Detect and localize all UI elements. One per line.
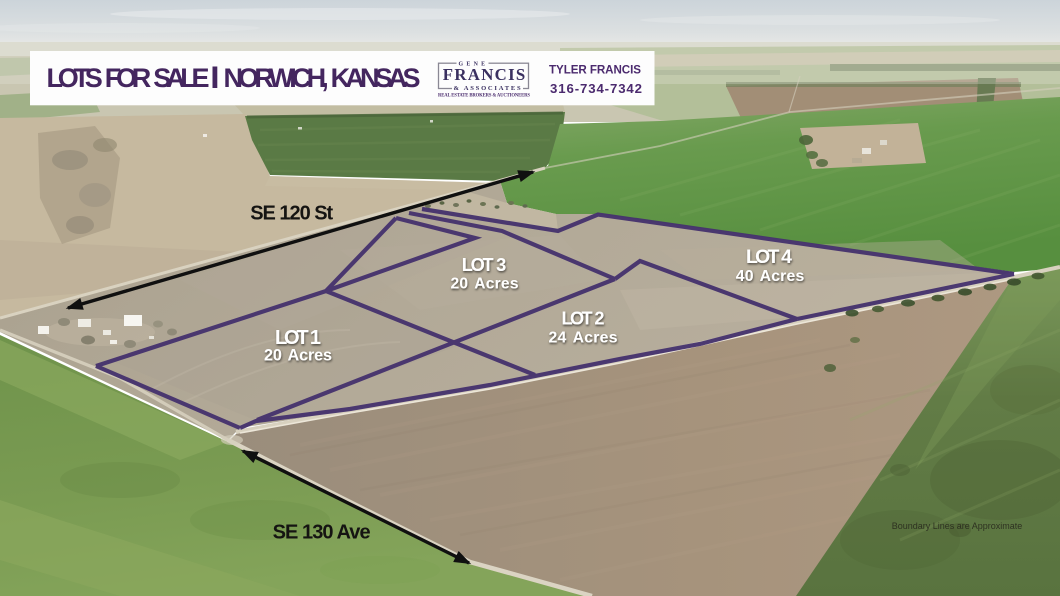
svg-text:24 Acres: 24 Acres — [549, 330, 618, 347]
svg-text:LOT 2: LOT 2 — [562, 308, 605, 328]
svg-text:FRANCIS: FRANCIS — [443, 65, 526, 84]
svg-text:LOTS FOR SALE: LOTS FOR SALE — [47, 63, 210, 93]
svg-text:LOT 3: LOT 3 — [462, 255, 507, 275]
svg-text:TYLER FRANCIS: TYLER FRANCIS — [549, 64, 641, 77]
svg-text:REAL ESTATE BROKERS & AUCTIONE: REAL ESTATE BROKERS & AUCTIONEERS — [438, 94, 530, 99]
svg-text:Boundary Lines are Approximate: Boundary Lines are Approximate — [892, 521, 1023, 531]
svg-text:20 Acres: 20 Acres — [264, 347, 332, 365]
svg-text:NORWICH, KANSAS: NORWICH, KANSAS — [224, 63, 421, 93]
svg-text:40 Acres: 40 Acres — [736, 268, 805, 285]
svg-text:SE 130 Ave: SE 130 Ave — [273, 521, 371, 543]
svg-text:SE 120 St: SE 120 St — [250, 203, 333, 225]
svg-text:316-734-7342: 316-734-7342 — [550, 81, 642, 96]
svg-text:& ASSOCIATES: & ASSOCIATES — [454, 85, 522, 92]
svg-text:20 Acres: 20 Acres — [451, 276, 519, 293]
svg-text:LOT 4: LOT 4 — [746, 246, 792, 268]
